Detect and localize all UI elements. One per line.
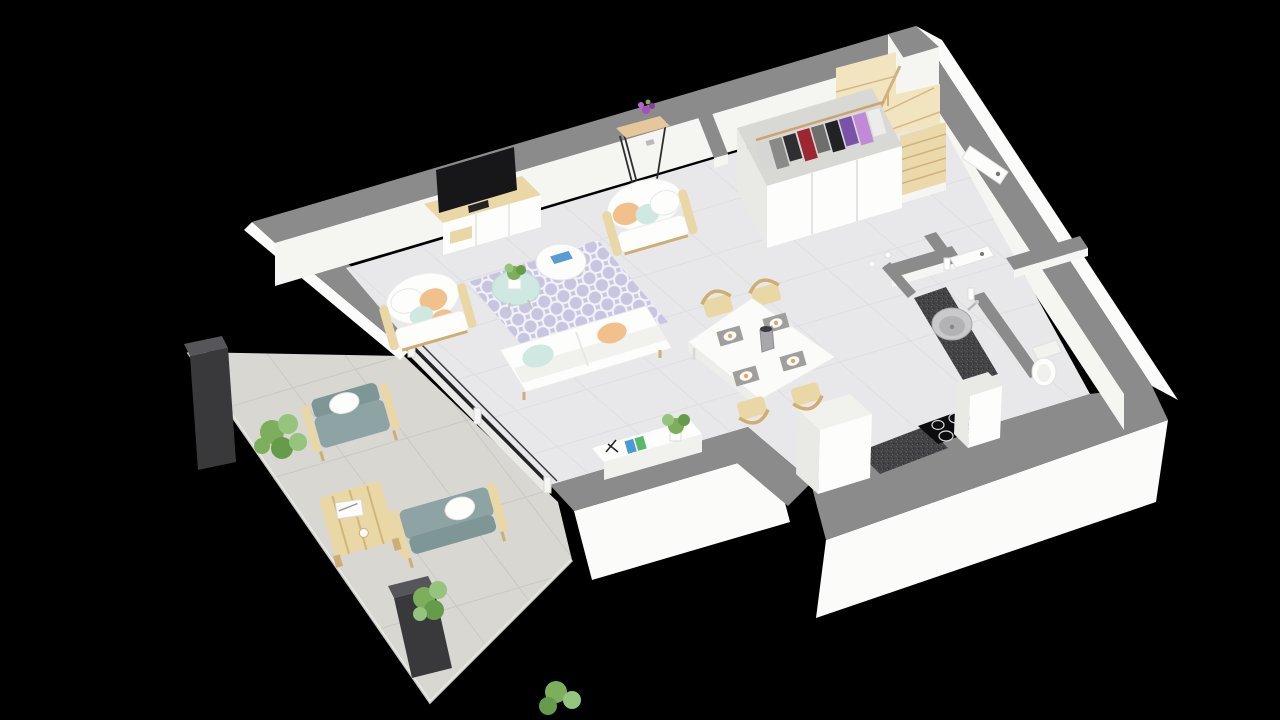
glass-door-post <box>474 408 481 424</box>
coffee-table-white <box>536 244 586 280</box>
sink-drain <box>950 325 954 329</box>
glass-door-post <box>544 477 551 493</box>
shrub-leaf <box>278 414 298 434</box>
flower <box>638 102 644 108</box>
shrub-leaf <box>563 691 581 709</box>
flower-leaf <box>646 100 651 105</box>
tall-cabinet <box>954 372 1002 448</box>
shrub-leaf <box>539 697 557 715</box>
flower <box>649 103 655 109</box>
houseplant <box>678 414 690 426</box>
wall-light <box>885 252 891 258</box>
houseplant <box>662 414 674 426</box>
shrub-leaf <box>413 607 427 621</box>
front-door-handle <box>996 172 1000 176</box>
magazines <box>335 499 363 518</box>
toilet-seat <box>1037 364 1051 382</box>
shrub-leaf <box>424 600 444 620</box>
plant-pot <box>508 279 521 289</box>
faucet-base <box>975 300 979 304</box>
succulent <box>505 264 514 273</box>
jug-top <box>760 326 772 332</box>
pillar-tall-face <box>190 348 236 470</box>
shrub-leaf <box>254 438 270 454</box>
floorplan-canvas <box>0 0 1280 720</box>
floorplan-render <box>0 0 1280 720</box>
water-jug <box>760 326 774 352</box>
wc-door-handle <box>980 252 984 256</box>
flower <box>642 106 650 114</box>
shrub-leaf <box>289 433 307 451</box>
door-frame-post <box>944 258 950 270</box>
door-frame-post <box>968 288 974 300</box>
shrub-leaf <box>429 581 447 599</box>
tall-cabinet-front <box>968 386 1002 448</box>
succulent <box>516 265 526 275</box>
wall-light <box>869 261 875 267</box>
